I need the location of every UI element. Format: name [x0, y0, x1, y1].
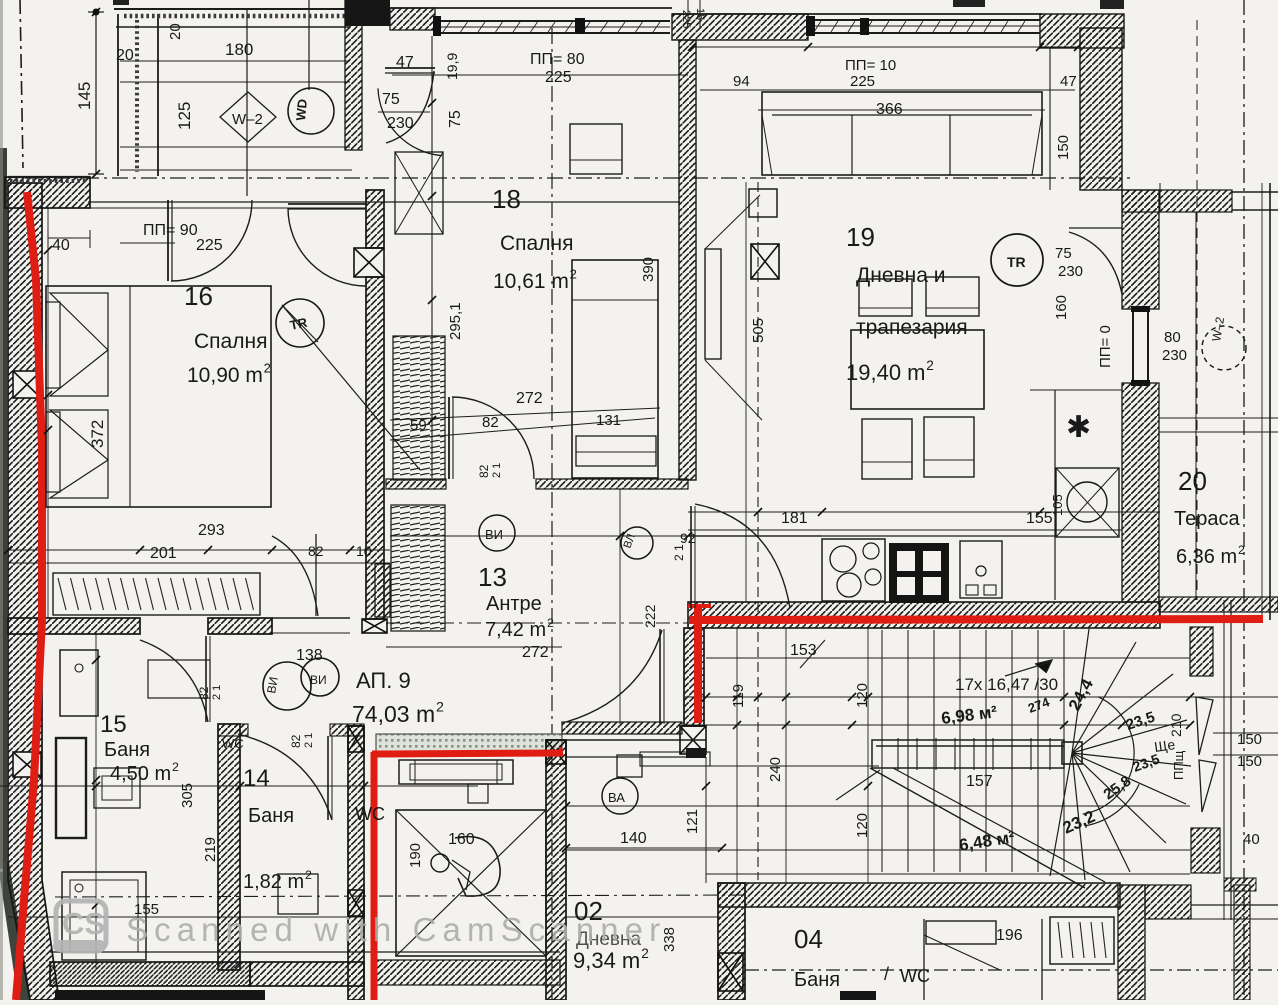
svg-text:2 1: 2 1 [303, 733, 315, 748]
svg-text:125: 125 [175, 102, 194, 130]
svg-text:Спалня: Спалня [500, 232, 573, 255]
svg-text:2: 2 [172, 760, 179, 774]
svg-text:140: 140 [620, 830, 647, 847]
svg-text:WC: WC [355, 804, 385, 824]
svg-text:230: 230 [1058, 263, 1083, 280]
svg-text:119: 119 [730, 684, 747, 708]
svg-text:ППщ: ППщ [1171, 750, 1186, 780]
svg-text:Баня: Баня [248, 805, 294, 827]
svg-text:ВИ: ВИ [264, 676, 281, 695]
svg-text:Баня: Баня [794, 969, 840, 991]
svg-text:150: 150 [1055, 135, 1072, 160]
svg-text:155: 155 [1026, 510, 1053, 527]
svg-text:105: 105 [1050, 494, 1065, 516]
svg-text:366: 366 [876, 101, 903, 118]
svg-text:196: 196 [996, 927, 1023, 944]
svg-text:201: 201 [150, 545, 177, 562]
svg-text:18: 18 [492, 184, 521, 214]
svg-text:20: 20 [167, 23, 184, 40]
svg-text:305: 305 [179, 783, 196, 808]
svg-text:505: 505 [750, 318, 767, 343]
svg-text:80: 80 [1164, 329, 1181, 346]
svg-text:150: 150 [1237, 731, 1262, 748]
svg-text:/: / [884, 964, 889, 984]
svg-text:75: 75 [382, 91, 400, 108]
svg-text:59: 59 [410, 417, 427, 434]
svg-text:трапезария: трапезария [856, 316, 968, 339]
svg-text:121: 121 [684, 809, 701, 834]
svg-text:225: 225 [545, 69, 572, 86]
svg-text:225: 225 [850, 73, 875, 90]
svg-text:Дневна и: Дневна и [856, 264, 946, 287]
svg-text:47: 47 [1060, 73, 1077, 90]
svg-text:6,36 m: 6,36 m [1176, 546, 1237, 568]
svg-text:ПП= 90: ПП= 90 [143, 222, 198, 239]
svg-text:75: 75 [1055, 245, 1072, 262]
svg-text:82: 82 [477, 464, 491, 478]
svg-text:180: 180 [225, 40, 253, 59]
svg-text:181: 181 [781, 510, 808, 527]
svg-text:293: 293 [198, 522, 225, 539]
svg-text:145: 145 [75, 82, 94, 110]
svg-text:ПП= 10: ПП= 10 [845, 57, 896, 74]
svg-text:15: 15 [100, 711, 127, 738]
svg-text:2 1: 2 1 [672, 544, 686, 561]
svg-text:372: 372 [88, 420, 107, 448]
svg-text:230: 230 [1162, 347, 1187, 364]
svg-text:CS: CS [62, 906, 105, 941]
svg-text:82: 82 [482, 414, 499, 431]
svg-text:2: 2 [926, 358, 934, 373]
svg-text:2: 2 [305, 868, 312, 882]
svg-text:20: 20 [116, 47, 134, 64]
svg-text:160: 160 [1053, 295, 1070, 320]
svg-text:WC: WC [900, 966, 930, 986]
svg-text:150: 150 [1237, 753, 1262, 770]
svg-text:2: 2 [264, 361, 271, 376]
svg-text:13: 13 [478, 562, 507, 592]
svg-text:190: 190 [407, 843, 424, 868]
svg-text:Тераса: Тераса [1174, 508, 1240, 530]
svg-text:2: 2 [1238, 543, 1245, 557]
svg-text:40: 40 [1243, 831, 1260, 848]
svg-text:40: 40 [52, 237, 70, 254]
svg-text:TR: TR [1007, 254, 1026, 270]
svg-text:230: 230 [387, 115, 414, 132]
svg-text:ВИ: ВИ [485, 527, 503, 542]
svg-text:219: 219 [202, 837, 219, 862]
svg-text:2: 2 [570, 267, 577, 282]
svg-text:120: 120 [854, 683, 871, 708]
svg-text:82: 82 [308, 543, 324, 559]
svg-text:14: 14 [243, 765, 270, 792]
svg-text:153: 153 [790, 642, 817, 659]
svg-text:16: 16 [184, 281, 213, 311]
svg-text:Scanned with CamScanner: Scanned with CamScanner [126, 911, 666, 948]
svg-text:Антре: Антре [486, 593, 542, 615]
svg-text:82: 82 [289, 734, 303, 748]
svg-text:19,9: 19,9 [444, 53, 460, 80]
svg-text:272: 272 [522, 644, 549, 661]
svg-text:2 1: 2 1 [491, 463, 503, 478]
svg-text:АП. 9: АП. 9 [356, 668, 411, 693]
svg-text:ВИ: ВИ [310, 673, 327, 687]
svg-text:210: 210 [1168, 713, 1184, 737]
svg-text:✱: ✱ [1066, 411, 1091, 444]
svg-text:Спалня: Спалня [194, 330, 267, 353]
svg-text:20: 20 [1178, 466, 1207, 496]
svg-text:390: 390 [640, 257, 657, 282]
svg-text:10,90 m: 10,90 m [187, 364, 263, 387]
svg-text:Баня: Баня [104, 739, 150, 761]
svg-text:92: 92 [680, 530, 696, 546]
svg-text:2: 2 [547, 616, 554, 630]
svg-text:131: 131 [596, 412, 621, 429]
svg-text:272: 272 [516, 390, 543, 407]
svg-text:1,82 m: 1,82 m [243, 871, 304, 893]
svg-text:4,50 m: 4,50 m [110, 763, 171, 785]
svg-text:157: 157 [966, 773, 993, 790]
svg-text:ПП= 0: ПП= 0 [1097, 325, 1114, 368]
svg-text:04: 04 [794, 924, 823, 954]
svg-text:120: 120 [854, 813, 871, 838]
svg-text:10: 10 [356, 543, 372, 559]
svg-text:47: 47 [396, 54, 414, 71]
svg-text:WC: WC [222, 736, 244, 751]
svg-text:2: 2 [436, 700, 444, 716]
svg-text:94: 94 [733, 73, 750, 90]
svg-text:82: 82 [197, 686, 211, 700]
svg-text:ПП= 80: ПП= 80 [530, 51, 585, 68]
svg-text:74,03 m: 74,03 m [352, 701, 435, 727]
svg-text:ВА: ВА [608, 790, 625, 805]
svg-text:WD: WD [293, 98, 310, 121]
svg-text:19: 19 [846, 222, 875, 252]
svg-text:17x 16,47 /30: 17x 16,47 /30 [955, 675, 1058, 694]
svg-text:9,34 m: 9,34 m [573, 948, 640, 973]
svg-text:240: 240 [767, 757, 784, 782]
svg-text:2: 2 [641, 946, 649, 961]
svg-text:295,1: 295,1 [447, 302, 464, 340]
svg-text:19,40 m: 19,40 m [846, 360, 926, 385]
svg-text:225: 225 [196, 237, 223, 254]
svg-text:W–2: W–2 [232, 111, 263, 128]
svg-text:2 1: 2 1 [211, 685, 223, 700]
svg-text:r: r [0, 855, 3, 899]
svg-text:75: 75 [447, 110, 464, 128]
svg-text:7,42 m: 7,42 m [485, 619, 546, 641]
svg-text:222: 222 [642, 604, 658, 628]
svg-text:10,61 m: 10,61 m [493, 270, 569, 293]
svg-text:160: 160 [448, 831, 475, 848]
